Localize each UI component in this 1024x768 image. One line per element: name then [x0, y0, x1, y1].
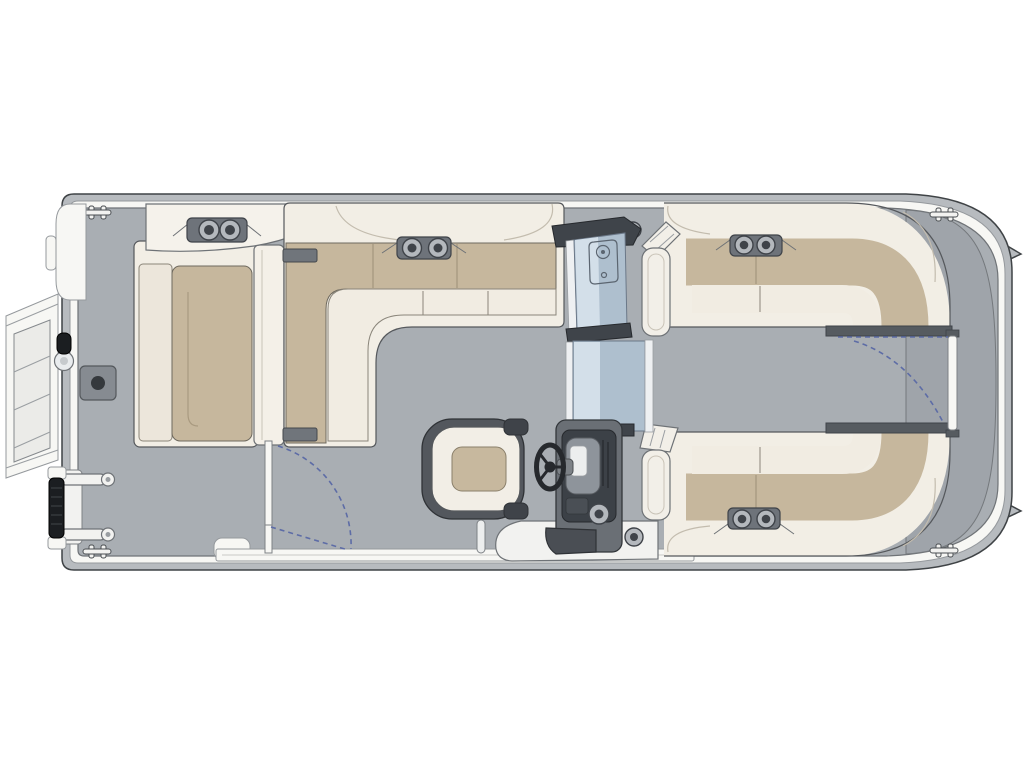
bench1-hinge-bottom	[283, 428, 317, 441]
windshield-left-strip-lower	[566, 342, 573, 430]
bench2-end-panel	[642, 248, 670, 336]
floorplan-page	[0, 0, 1024, 768]
lounger-back-cushion	[139, 264, 172, 441]
steering-hub	[545, 462, 556, 473]
bench2-end-edge	[826, 326, 952, 336]
helm-footrest	[546, 528, 596, 554]
bow-gate-tab	[46, 236, 56, 270]
cupholder-1a-center	[204, 225, 214, 235]
starboard-aft-bench	[640, 423, 952, 556]
stern-gate-post-bottom	[946, 430, 959, 437]
ladder-tube-upper-dot	[106, 477, 111, 482]
hatch-latch	[91, 376, 105, 390]
captains-chair	[422, 419, 528, 519]
cupholder-4a-center	[738, 515, 747, 524]
cupholder-1b-center	[225, 225, 235, 235]
chair-pad	[452, 447, 506, 491]
ladder-connector-top	[48, 467, 66, 479]
port-gate-open	[265, 441, 272, 553]
platform-tread-panel	[14, 320, 50, 462]
windshield-lower-sheen	[574, 342, 600, 430]
lounger-end-filler	[254, 245, 284, 445]
pontoon-floorplan	[0, 0, 1024, 768]
speaker-grille-aft-center	[630, 533, 638, 541]
speaker-grille-helm-center	[595, 510, 604, 519]
chair-armrest-top	[504, 419, 528, 435]
bench1-hinge-top	[283, 249, 317, 262]
door-latch-dot	[601, 250, 605, 254]
bow-boarding-platform	[6, 294, 58, 478]
starboard-forward-bench	[625, 203, 952, 336]
ladder-tube-lower	[60, 529, 106, 540]
bench3-end-panel	[642, 450, 670, 520]
console-lower-block	[566, 498, 588, 514]
windshield-right-strip	[645, 340, 653, 432]
pedestal-mount	[477, 520, 485, 553]
ladder-grip	[49, 478, 64, 538]
bow-gate-panel	[56, 204, 86, 300]
ladder-tube-lower-dot	[106, 532, 111, 537]
ladder-tube-upper	[60, 474, 106, 485]
cupholder-2b-center	[434, 244, 443, 253]
cupholder-2a-center	[408, 244, 417, 253]
deck-hatch	[80, 366, 116, 400]
cupholder-4b-center	[762, 515, 771, 524]
bow-lounger	[134, 241, 258, 447]
lounger-pad	[172, 266, 252, 441]
cupholder-3b-center	[762, 241, 771, 250]
light-pole-knob	[57, 333, 71, 354]
chair-armrest-bottom	[504, 503, 528, 519]
bench3-end-edge	[826, 423, 952, 433]
pole-base-inner	[60, 357, 68, 365]
ladder-connector-bottom	[48, 537, 66, 549]
cupholder-3a-center	[740, 241, 749, 250]
stern-gate-open	[948, 336, 957, 430]
